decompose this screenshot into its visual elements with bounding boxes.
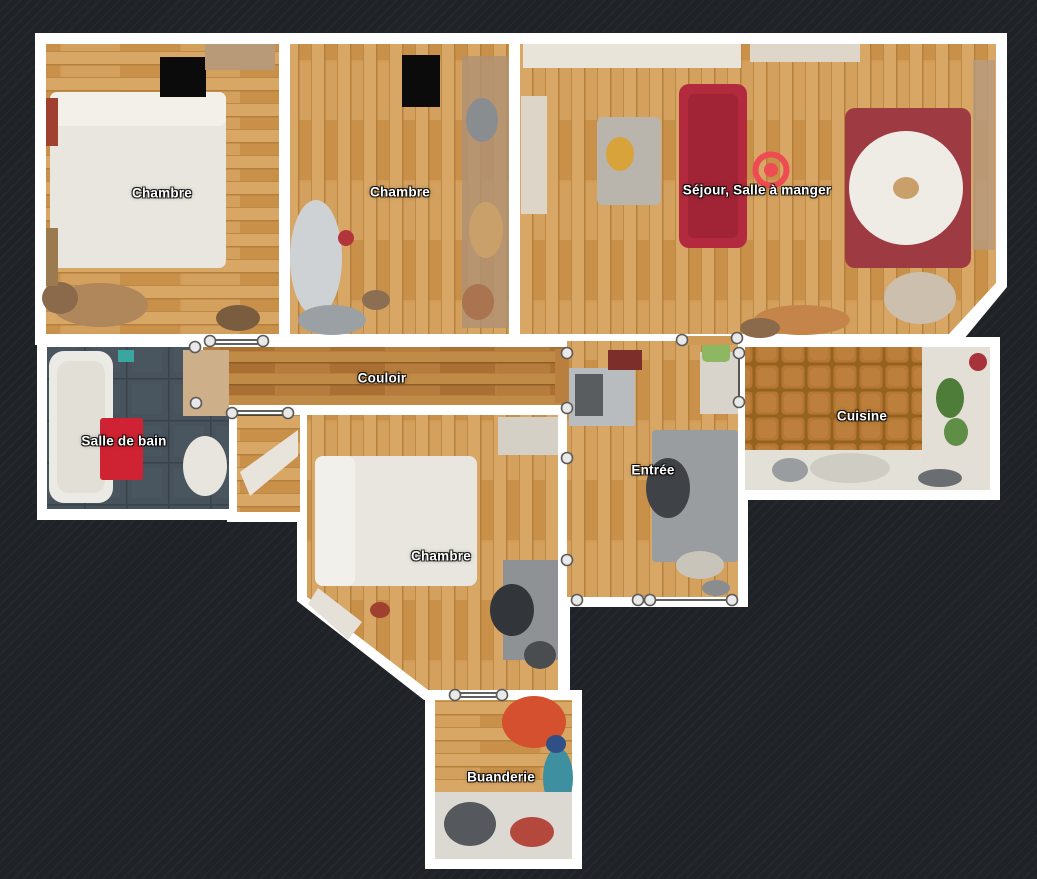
chair (216, 305, 260, 331)
wall-node[interactable] (258, 336, 269, 347)
curtains (750, 44, 860, 62)
wall-node[interactable] (633, 595, 644, 606)
doormat (608, 350, 642, 370)
room-floor-couloir[interactable] (203, 347, 567, 405)
wall-node[interactable] (562, 555, 573, 566)
floor-clutter (524, 641, 556, 669)
room-chambre-1[interactable] (42, 44, 279, 334)
floor-clutter (42, 282, 78, 314)
side-table (46, 98, 58, 146)
floor-clutter (370, 602, 390, 618)
wall-node[interactable] (283, 408, 294, 419)
wall-node[interactable] (677, 335, 688, 346)
floor-clutter (676, 551, 724, 579)
skylight-void (160, 57, 206, 97)
wall-node[interactable] (732, 333, 743, 344)
floor-clutter (298, 305, 366, 335)
kitchen-item (969, 353, 987, 371)
plant (944, 418, 968, 446)
wall-node[interactable] (191, 398, 202, 409)
armchair (606, 137, 634, 171)
room-chambre-3[interactable] (307, 415, 558, 690)
bench-items (575, 374, 603, 416)
sofa-cushions (688, 94, 738, 238)
desk-chair (646, 458, 690, 518)
floor-clutter (469, 202, 503, 258)
sideboard (521, 96, 547, 214)
floor-clutter (338, 230, 354, 246)
room-chambre-2[interactable] (290, 44, 509, 335)
wall-node[interactable] (205, 336, 216, 347)
room-salle-de-bain[interactable] (47, 347, 229, 509)
bed-pillows (50, 92, 226, 126)
camera-marker-center-dot[interactable] (764, 163, 778, 177)
floorplan-viewer: Chambre Chambre Séjour, Salle à manger C… (0, 0, 1037, 879)
wall-node[interactable] (727, 595, 738, 606)
laundry-item (546, 735, 566, 753)
closet[interactable] (237, 415, 300, 512)
sink (810, 453, 890, 483)
laundry-pile (510, 817, 554, 847)
room-entree[interactable] (567, 340, 738, 597)
washer-drum (444, 802, 496, 846)
kitchen-item (918, 469, 962, 487)
wall-node[interactable] (562, 348, 573, 359)
floor-clutter (466, 98, 498, 142)
floor-clutter (740, 318, 780, 338)
table-centerpiece (893, 177, 919, 199)
side-table (46, 228, 58, 286)
wall-node[interactable] (227, 408, 238, 419)
toilet (183, 436, 227, 496)
wall-node[interactable] (190, 342, 201, 353)
room-buanderie[interactable] (435, 696, 573, 859)
room-cuisine[interactable] (745, 347, 990, 490)
room-couloir[interactable] (203, 347, 567, 405)
plant (936, 378, 964, 418)
wardrobe (290, 200, 342, 316)
wall-node[interactable] (562, 403, 573, 414)
wall-node[interactable] (734, 397, 745, 408)
floor-clutter (362, 290, 390, 310)
bathroom-cabinet (183, 350, 229, 416)
wardrobe (498, 417, 558, 455)
wall-node[interactable] (497, 690, 508, 701)
room-sejour-salle-a-manger[interactable] (520, 44, 996, 338)
wall-node[interactable] (645, 595, 656, 606)
floor-clutter (462, 284, 494, 320)
bathtub-basin (57, 361, 105, 493)
desk-chair (490, 584, 534, 636)
shelf-item (118, 350, 134, 362)
wall-node[interactable] (734, 348, 745, 359)
stove-items (772, 458, 808, 482)
floorplan-canvas (0, 0, 1037, 879)
wall-node[interactable] (450, 690, 461, 701)
curtains (523, 44, 741, 68)
skylight-void (402, 55, 440, 107)
bath-mat (100, 418, 143, 480)
dresser (205, 44, 275, 70)
bed-pillows (315, 456, 355, 586)
wall-node[interactable] (572, 595, 583, 606)
floor-clutter (702, 580, 730, 596)
shelf-right (973, 60, 995, 250)
floor-clutter (884, 272, 956, 324)
wall-node[interactable] (562, 453, 573, 464)
passage-sejour-entree (686, 336, 734, 345)
